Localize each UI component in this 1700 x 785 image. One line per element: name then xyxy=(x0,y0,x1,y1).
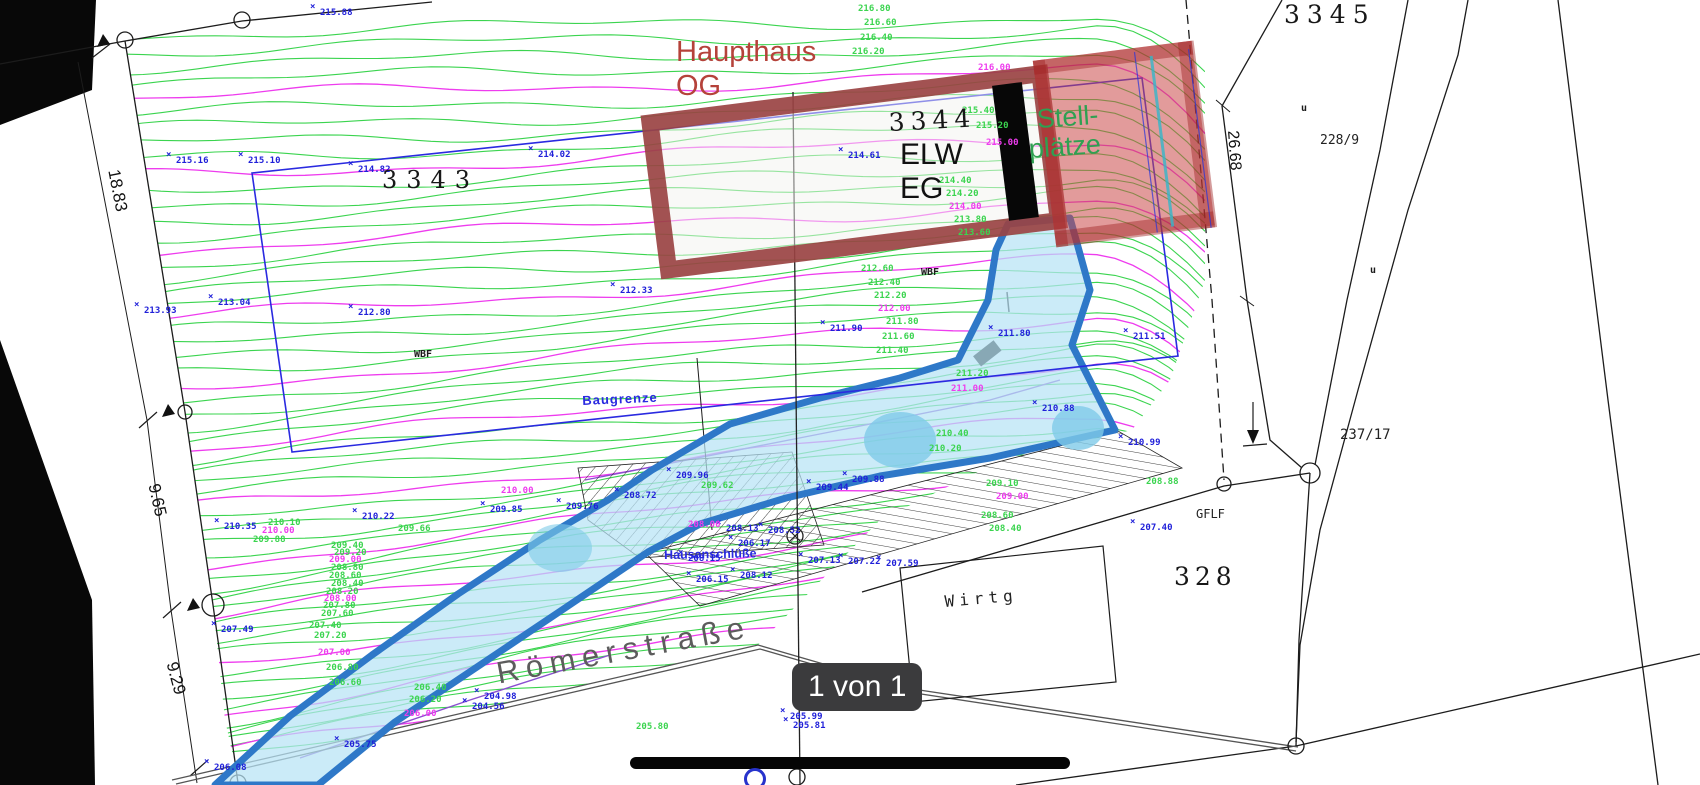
elevation-label: 207.13 xyxy=(808,556,841,566)
survey-cross-icon: × xyxy=(758,520,763,530)
elevation-label: 210.40 xyxy=(936,429,969,439)
survey-cross-icon: × xyxy=(876,553,881,563)
elevation-label: 211.90 xyxy=(830,324,863,334)
elevation-label: 206.08 xyxy=(214,763,247,773)
survey-cross-icon: × xyxy=(556,496,561,506)
survey-cross-icon: × xyxy=(988,323,993,333)
elevation-label: 207.60 xyxy=(321,609,354,619)
survey-cross-icon: × xyxy=(838,145,843,155)
elevation-label: 210.35 xyxy=(224,522,257,532)
survey-cross-icon: × xyxy=(204,757,209,767)
survey-cross-icon: × xyxy=(838,551,843,561)
elevation-label: 213.93 xyxy=(144,306,177,316)
survey-cross-icon: × xyxy=(352,506,357,516)
elevation-label: 205.80 xyxy=(636,722,669,732)
elevation-label: 207.40 xyxy=(1140,523,1173,533)
elevation-label: 207.00 xyxy=(318,648,351,658)
survey-cross-icon: × xyxy=(474,686,479,696)
elevation-label: 211.51 xyxy=(1133,332,1166,342)
home-indicator[interactable] xyxy=(630,757,1070,769)
gflf-label: GFLF xyxy=(1196,508,1225,520)
elevation-label: 215.20 xyxy=(976,121,1009,131)
survey-cross-icon: × xyxy=(1123,326,1128,336)
plan-canvas[interactable]: ×215.88×215.16×215.10×214.82×214.02×214.… xyxy=(0,0,1700,785)
elevation-label: 215.88 xyxy=(320,8,353,18)
elevation-label: 209.62 xyxy=(701,481,734,491)
stellplaetze-label-line2: plätze xyxy=(1028,131,1102,163)
survey-cross-icon: × xyxy=(134,300,139,310)
elevation-label: 213.80 xyxy=(954,215,987,225)
elevation-label: 206.80 xyxy=(326,663,359,673)
map-text-label: u xyxy=(1370,265,1376,276)
elevation-label: 210.99 xyxy=(1128,438,1161,448)
elevation-label: 208.88 xyxy=(1146,477,1179,487)
elevation-label: 206.60 xyxy=(329,678,362,688)
elevation-label: 207.20 xyxy=(314,631,347,641)
haupthaus-label-line1: Haupthaus xyxy=(676,38,816,67)
elevation-label: 207.59 xyxy=(886,559,919,569)
elevation-label: 206.15 xyxy=(696,575,729,585)
survey-cross-icon: × xyxy=(614,485,619,495)
elevation-label: 211.00 xyxy=(951,384,984,394)
elevation-label: 209.76 xyxy=(566,502,599,512)
elevation-label: 209.00 xyxy=(996,492,1029,502)
elevation-label: 207.40 xyxy=(309,621,342,631)
eg-label: EG xyxy=(900,174,943,204)
survey-cross-icon: × xyxy=(730,565,735,575)
elevation-label: 212.20 xyxy=(874,291,907,301)
elevation-label: 215.00 xyxy=(986,138,1019,148)
elevation-label: 213.60 xyxy=(958,228,991,238)
elevation-label: 208.40 xyxy=(989,524,1022,534)
elw-label: ELW xyxy=(900,140,963,170)
survey-cross-icon: × xyxy=(208,292,213,302)
map-text-label: WBF xyxy=(921,267,939,278)
elevation-label: 211.40 xyxy=(876,346,909,356)
page-indicator-badge: 1 von 1 xyxy=(792,663,922,711)
elevation-label: 211.60 xyxy=(882,332,915,342)
survey-cross-icon: × xyxy=(238,150,243,160)
survey-cross-icon: × xyxy=(334,734,339,744)
survey-cross-icon: × xyxy=(1032,398,1037,408)
hausanschluesse-label: Hausanschlüße xyxy=(664,547,757,561)
elevation-label: 206.00 xyxy=(404,709,437,719)
elevation-label: 206.20 xyxy=(409,695,442,705)
elevation-label: 208.00 xyxy=(688,520,721,530)
survey-cross-icon: × xyxy=(610,280,615,290)
elevation-label: 209.88 xyxy=(253,535,286,545)
elevation-label: 210.22 xyxy=(362,512,395,522)
elevation-label: 212.60 xyxy=(861,264,894,274)
survey-cross-icon: × xyxy=(1130,517,1135,527)
elevation-label: 216.40 xyxy=(860,33,893,43)
survey-cross-icon: × xyxy=(166,150,171,160)
elevation-label: 208.12 xyxy=(740,571,773,581)
parcel-number-228-9: 228/9 xyxy=(1320,134,1359,147)
elevation-label: 209.44 xyxy=(816,483,849,493)
elevation-label: 214.02 xyxy=(538,150,571,160)
map-text-label: u xyxy=(1301,103,1307,114)
elevation-label: 212.40 xyxy=(868,278,901,288)
survey-cross-icon: × xyxy=(783,715,788,725)
baugrenze-label: Baugrenze xyxy=(582,391,658,407)
elevation-label: 209.66 xyxy=(398,524,431,534)
elevation-label: 214.20 xyxy=(946,189,979,199)
survey-cross-icon: × xyxy=(666,465,671,475)
elevation-label: 208.52 xyxy=(768,526,801,536)
elevation-label: 206.40 xyxy=(414,683,447,693)
elevation-label: 205.75 xyxy=(344,740,377,750)
survey-cross-icon: × xyxy=(214,516,219,526)
elevation-label: 215.10 xyxy=(248,156,281,166)
elevation-label: 204.98 xyxy=(484,692,517,702)
elevation-label: 214.00 xyxy=(949,202,982,212)
stellplaetze-label-line1: Stell- xyxy=(1036,102,1099,133)
survey-cross-icon: × xyxy=(528,144,533,154)
sheet-background-wedges xyxy=(0,0,96,785)
elevation-label: 212.33 xyxy=(620,286,653,296)
survey-cross-icon: × xyxy=(798,550,803,560)
elevation-label: 209.10 xyxy=(986,479,1019,489)
survey-cross-icon: × xyxy=(686,569,691,579)
elevation-label: 209.88 xyxy=(852,475,885,485)
elevation-label: 216.60 xyxy=(864,18,897,28)
elevation-label: 210.88 xyxy=(1042,404,1075,414)
elevation-label: 211.80 xyxy=(998,329,1031,339)
parcel-number-237-17: 237/17 xyxy=(1340,428,1391,442)
elevation-label: 205.81 xyxy=(793,721,826,731)
elevation-label: 214.40 xyxy=(939,176,972,186)
map-point-ring-icon xyxy=(744,768,766,785)
parcel-number-3343: 3343 xyxy=(382,168,479,192)
elevation-label: 216.80 xyxy=(858,4,891,14)
elevation-label: 212.80 xyxy=(358,308,391,318)
elevation-label: 204.56 xyxy=(472,702,505,712)
elevation-label: 207.49 xyxy=(221,625,254,635)
elevation-label: 209.96 xyxy=(676,471,709,481)
elevation-label: 208.72 xyxy=(624,491,657,501)
survey-cross-icon: × xyxy=(842,469,847,479)
elevation-label: 209.85 xyxy=(490,505,523,515)
survey-cross-icon: × xyxy=(480,499,485,509)
survey-cross-icon: × xyxy=(348,302,353,312)
elevation-label: 210.20 xyxy=(929,444,962,454)
elevation-label: 212.00 xyxy=(878,304,911,314)
elevation-label: 208.60 xyxy=(981,511,1014,521)
elevation-label: 213.04 xyxy=(218,298,251,308)
elevation-label: 215.16 xyxy=(176,156,209,166)
elevation-label: 216.20 xyxy=(852,47,885,57)
elevation-label: 214.61 xyxy=(848,151,881,161)
survey-cross-icon: × xyxy=(348,159,353,169)
survey-cross-icon: × xyxy=(820,318,825,328)
map-text-label: WBF xyxy=(414,349,432,360)
elevation-label: 216.00 xyxy=(978,63,1011,73)
elevation-label: 211.80 xyxy=(886,317,919,327)
parcel-number-3345: 3345 xyxy=(1284,2,1376,27)
dimension-26-68: 26.68 xyxy=(1224,130,1243,171)
survey-cross-icon: × xyxy=(310,2,315,12)
survey-cross-icon: × xyxy=(728,533,733,543)
elevation-label: 211.20 xyxy=(956,369,989,379)
survey-cross-icon: × xyxy=(1118,432,1123,442)
survey-cross-icon: × xyxy=(806,477,811,487)
elevation-label: 210.00 xyxy=(501,486,534,496)
survey-cross-icon: × xyxy=(211,619,216,629)
parcel-number-328: 328 xyxy=(1174,564,1237,589)
parcel-number-3344: 3344 xyxy=(888,105,977,135)
survey-cross-icon: × xyxy=(462,696,467,706)
haupthaus-label-line2: OG xyxy=(676,72,721,101)
